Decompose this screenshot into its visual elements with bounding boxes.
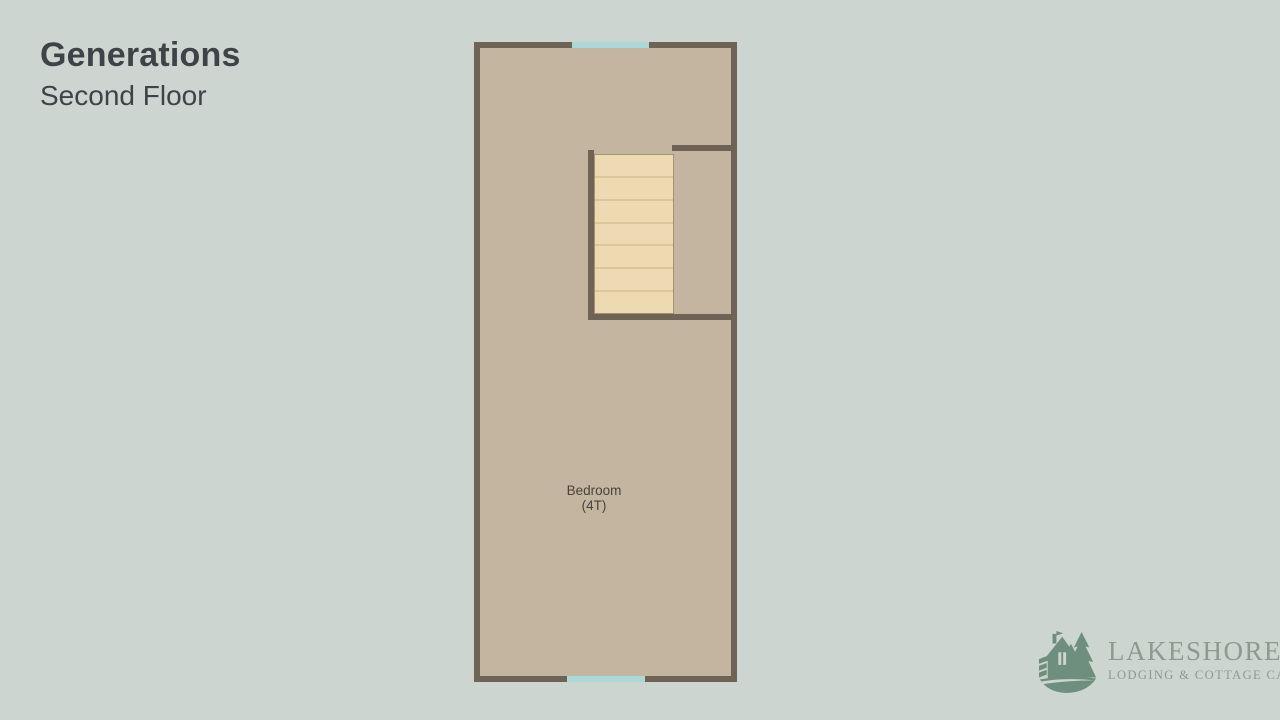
stair-tread xyxy=(595,176,673,199)
stair-tread xyxy=(595,244,673,267)
interior-wall-upper xyxy=(672,145,731,151)
window-bottom xyxy=(567,676,645,682)
stair-tread xyxy=(595,199,673,222)
page-title: Generations xyxy=(40,36,241,75)
brand-tagline: LODGING & COTTAGE CARE xyxy=(1108,668,1280,683)
room-label: Bedroom (4T) xyxy=(514,484,674,513)
brand-text: LAKESHORE LODGING & COTTAGE CARE xyxy=(1108,638,1280,683)
page-canvas: Generations Second Floor Bedroom (4T) xyxy=(0,0,1280,720)
stair-tread xyxy=(595,155,673,176)
staircase xyxy=(594,154,674,314)
stair-tread xyxy=(595,267,673,290)
page-subtitle: Second Floor xyxy=(40,80,241,112)
interior-wall-lower xyxy=(588,314,731,320)
window-top xyxy=(572,42,649,48)
brand-logo: LAKESHORE LODGING & COTTAGE CARE xyxy=(1038,626,1280,696)
stair-tread xyxy=(595,290,673,313)
plan-header: Generations Second Floor xyxy=(40,36,241,112)
floorplan-building: Bedroom (4T) xyxy=(474,42,737,682)
brand-name: LAKESHORE xyxy=(1108,638,1280,665)
room-name: Bedroom xyxy=(514,484,674,499)
cottage-trees-wave-icon xyxy=(1038,626,1100,696)
room-code: (4T) xyxy=(514,499,674,514)
stair-tread xyxy=(595,222,673,245)
